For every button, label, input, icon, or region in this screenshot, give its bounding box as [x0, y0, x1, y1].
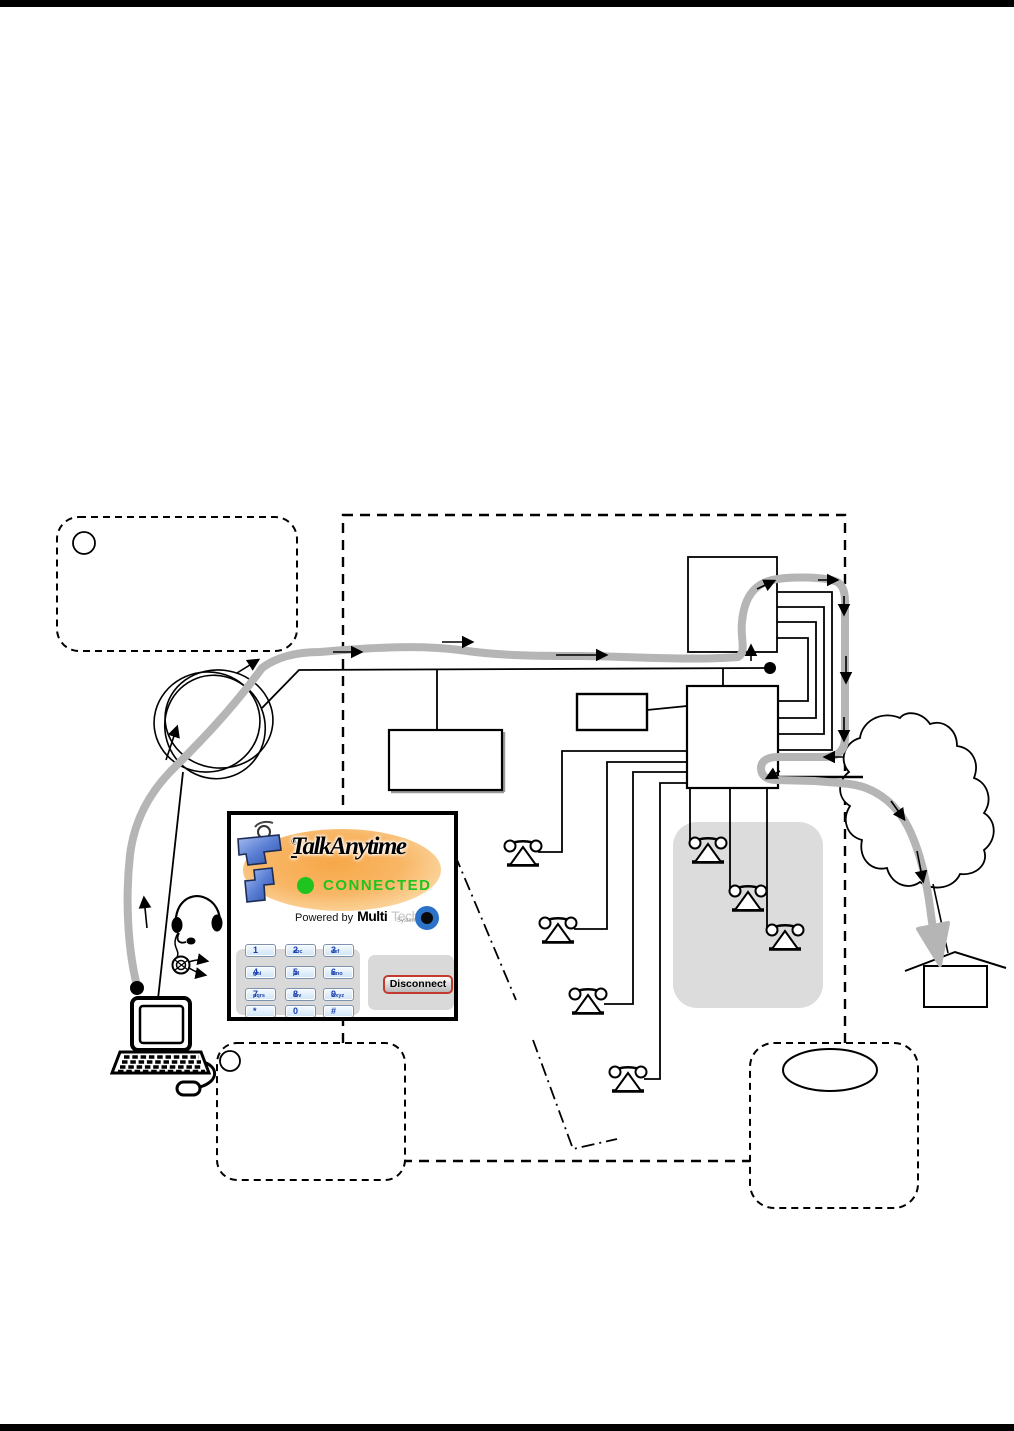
line-terminator-dot	[764, 662, 776, 674]
path-endpoint-dot	[130, 981, 144, 995]
talkanytime-phone-logo-icon	[233, 817, 295, 913]
disconnect-button[interactable]: Disconnect	[383, 975, 453, 994]
powered-by-row: Powered by Multi Tech Systems	[295, 908, 420, 924]
brand-title: TalkAnytime®	[291, 833, 297, 861]
keypad-key-pound[interactable]: #	[323, 1005, 354, 1018]
keypad-key-2[interactable]: 2abc	[285, 944, 316, 957]
keypad-key-1[interactable]: 1	[245, 944, 276, 957]
keypad-key-7[interactable]: 7pqrs	[245, 988, 276, 1001]
phone-group-zone	[673, 822, 823, 1008]
callout-1-marker-circle	[73, 532, 95, 554]
keypad-key-4[interactable]: 4ghi	[245, 966, 276, 979]
server-box	[389, 730, 504, 792]
database-disk-icon	[783, 1049, 877, 1091]
callout-1	[57, 517, 297, 651]
multitech-badge-icon	[415, 906, 439, 930]
call-path-arrowhead	[918, 923, 948, 965]
softphone-window: TalkAnytime® CONNECTED Powered by Multi …	[227, 811, 458, 1021]
microphone-boom	[187, 938, 196, 945]
callout-2-marker-circle	[220, 1051, 240, 1071]
status-label: CONNECTED	[323, 877, 432, 894]
keypad-key-star[interactable]: *	[245, 1005, 276, 1018]
status-dot-icon	[297, 877, 314, 894]
multitech-logo-bold: Multi	[357, 908, 387, 924]
laptop-icon	[112, 981, 215, 1095]
keypad-key-3[interactable]: 3def	[323, 944, 354, 957]
callout-2	[217, 1043, 405, 1180]
keypad-key-6[interactable]: 6mno	[323, 966, 354, 979]
keypad-key-5[interactable]: 5jkl	[285, 966, 316, 979]
headset-icon	[172, 896, 223, 975]
callout-3	[750, 1043, 918, 1208]
keypad-key-9[interactable]: 9wxyz	[323, 988, 354, 1001]
keypad-key-0[interactable]: 0	[285, 1005, 316, 1018]
console-box	[577, 694, 647, 730]
mouse-icon	[177, 1082, 200, 1095]
gateway-box-top	[688, 557, 777, 652]
powered-by-label: Powered by	[295, 912, 353, 924]
keypad-key-8[interactable]: 8tuv	[285, 988, 316, 1001]
connection-status: CONNECTED	[297, 877, 432, 894]
call-flow-diagram	[0, 0, 1014, 1431]
remote-house-icon	[905, 952, 1006, 1007]
